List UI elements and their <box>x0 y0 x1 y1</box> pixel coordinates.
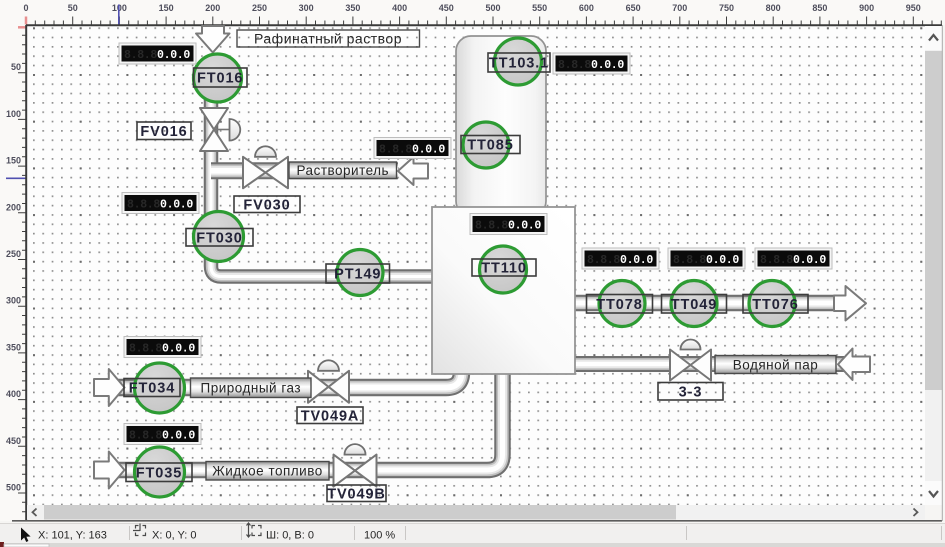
svg-text:0.0.0: 0.0.0 <box>412 144 445 157</box>
svg-text:8.8.8: 8.8.8 <box>127 199 160 212</box>
svg-text:TT110: TT110 <box>481 261 527 277</box>
svg-text:0.0.0: 0.0.0 <box>162 343 195 356</box>
svg-text:8.8.8: 8.8.8 <box>587 254 620 267</box>
svg-text:50: 50 <box>68 3 78 13</box>
svg-text:Жидкое топливо: Жидкое топливо <box>212 464 323 479</box>
svg-text:100 %: 100 % <box>364 530 395 542</box>
svg-text:250: 250 <box>252 3 267 13</box>
svg-text:8.8.8: 8.8.8 <box>379 144 412 157</box>
svg-text:450: 450 <box>6 436 21 446</box>
svg-text:Растворитель: Растворитель <box>297 163 390 178</box>
svg-text:FT035: FT035 <box>136 466 182 482</box>
svg-text:Природный газ: Природный газ <box>201 381 301 396</box>
svg-text:50: 50 <box>11 62 21 72</box>
svg-text:400: 400 <box>392 3 407 13</box>
svg-text:0.0.0: 0.0.0 <box>162 430 195 443</box>
svg-text:FT030: FT030 <box>196 231 242 247</box>
svg-text:0.0.0: 0.0.0 <box>508 220 541 233</box>
svg-text:8.8.8: 8.8.8 <box>129 430 162 443</box>
svg-text:0.0.0: 0.0.0 <box>706 254 739 267</box>
svg-text:8.8.8: 8.8.8 <box>558 59 591 72</box>
svg-text:TT103.1: TT103.1 <box>489 56 549 72</box>
svg-text:350: 350 <box>6 342 21 352</box>
svg-text:950: 950 <box>906 3 921 13</box>
svg-text:PT149: PT149 <box>334 267 381 283</box>
svg-text:650: 650 <box>626 3 641 13</box>
svg-text:8.8.8: 8.8.8 <box>760 254 793 267</box>
svg-text:500: 500 <box>6 483 21 493</box>
svg-text:500: 500 <box>485 3 500 13</box>
svg-text:350: 350 <box>345 3 360 13</box>
svg-text:200: 200 <box>205 3 220 13</box>
svg-text:Водяной пар: Водяной пар <box>733 357 819 372</box>
svg-text:TT078: TT078 <box>596 297 642 313</box>
svg-text:Рафинатный раствор: Рафинатный раствор <box>254 31 402 47</box>
svg-text:800: 800 <box>766 3 781 13</box>
svg-text:300: 300 <box>299 3 314 13</box>
svg-text:3-3: 3-3 <box>679 385 703 401</box>
svg-text:0.0.0: 0.0.0 <box>157 49 190 62</box>
svg-text:900: 900 <box>859 3 874 13</box>
svg-text:TT085: TT085 <box>467 138 513 154</box>
svg-text:300: 300 <box>6 296 21 306</box>
svg-text:700: 700 <box>672 3 687 13</box>
svg-text:0: 0 <box>23 3 28 13</box>
svg-text:FT016: FT016 <box>197 71 243 87</box>
svg-text:850: 850 <box>812 3 827 13</box>
svg-text:0.0.0: 0.0.0 <box>591 59 624 72</box>
svg-text:550: 550 <box>532 3 547 13</box>
svg-text:8.8.8: 8.8.8 <box>129 343 162 356</box>
svg-text:150: 150 <box>159 3 174 13</box>
svg-text:8.8.8: 8.8.8 <box>124 49 157 62</box>
svg-text:400: 400 <box>6 389 21 399</box>
svg-text:450: 450 <box>439 3 454 13</box>
svg-text:0.0.0: 0.0.0 <box>620 254 653 267</box>
svg-text:0.0.0: 0.0.0 <box>793 254 826 267</box>
svg-text:FV016: FV016 <box>140 124 187 140</box>
svg-text:X: 0, Y: 0: X: 0, Y: 0 <box>152 530 196 542</box>
svg-text:TT049: TT049 <box>671 297 717 313</box>
svg-text:750: 750 <box>719 3 734 13</box>
svg-text:TV049A: TV049A <box>301 409 360 425</box>
svg-text:8.8.8: 8.8.8 <box>673 254 706 267</box>
svg-text:FT034: FT034 <box>129 381 175 397</box>
svg-text:100: 100 <box>6 109 21 119</box>
svg-text:600: 600 <box>579 3 594 13</box>
svg-text:Ш: 0, В: 0: Ш: 0, В: 0 <box>266 530 314 542</box>
svg-text:8.8.8: 8.8.8 <box>475 220 508 233</box>
svg-text:FV030: FV030 <box>243 198 290 214</box>
svg-text:250: 250 <box>6 249 21 259</box>
svg-text:0.0.0: 0.0.0 <box>160 199 193 212</box>
svg-text:X: 101, Y: 163: X: 101, Y: 163 <box>38 530 107 542</box>
svg-text:200: 200 <box>6 202 21 212</box>
svg-text:150: 150 <box>6 156 21 166</box>
svg-text:TT076: TT076 <box>752 297 798 313</box>
svg-text:TV049B: TV049B <box>327 487 386 503</box>
